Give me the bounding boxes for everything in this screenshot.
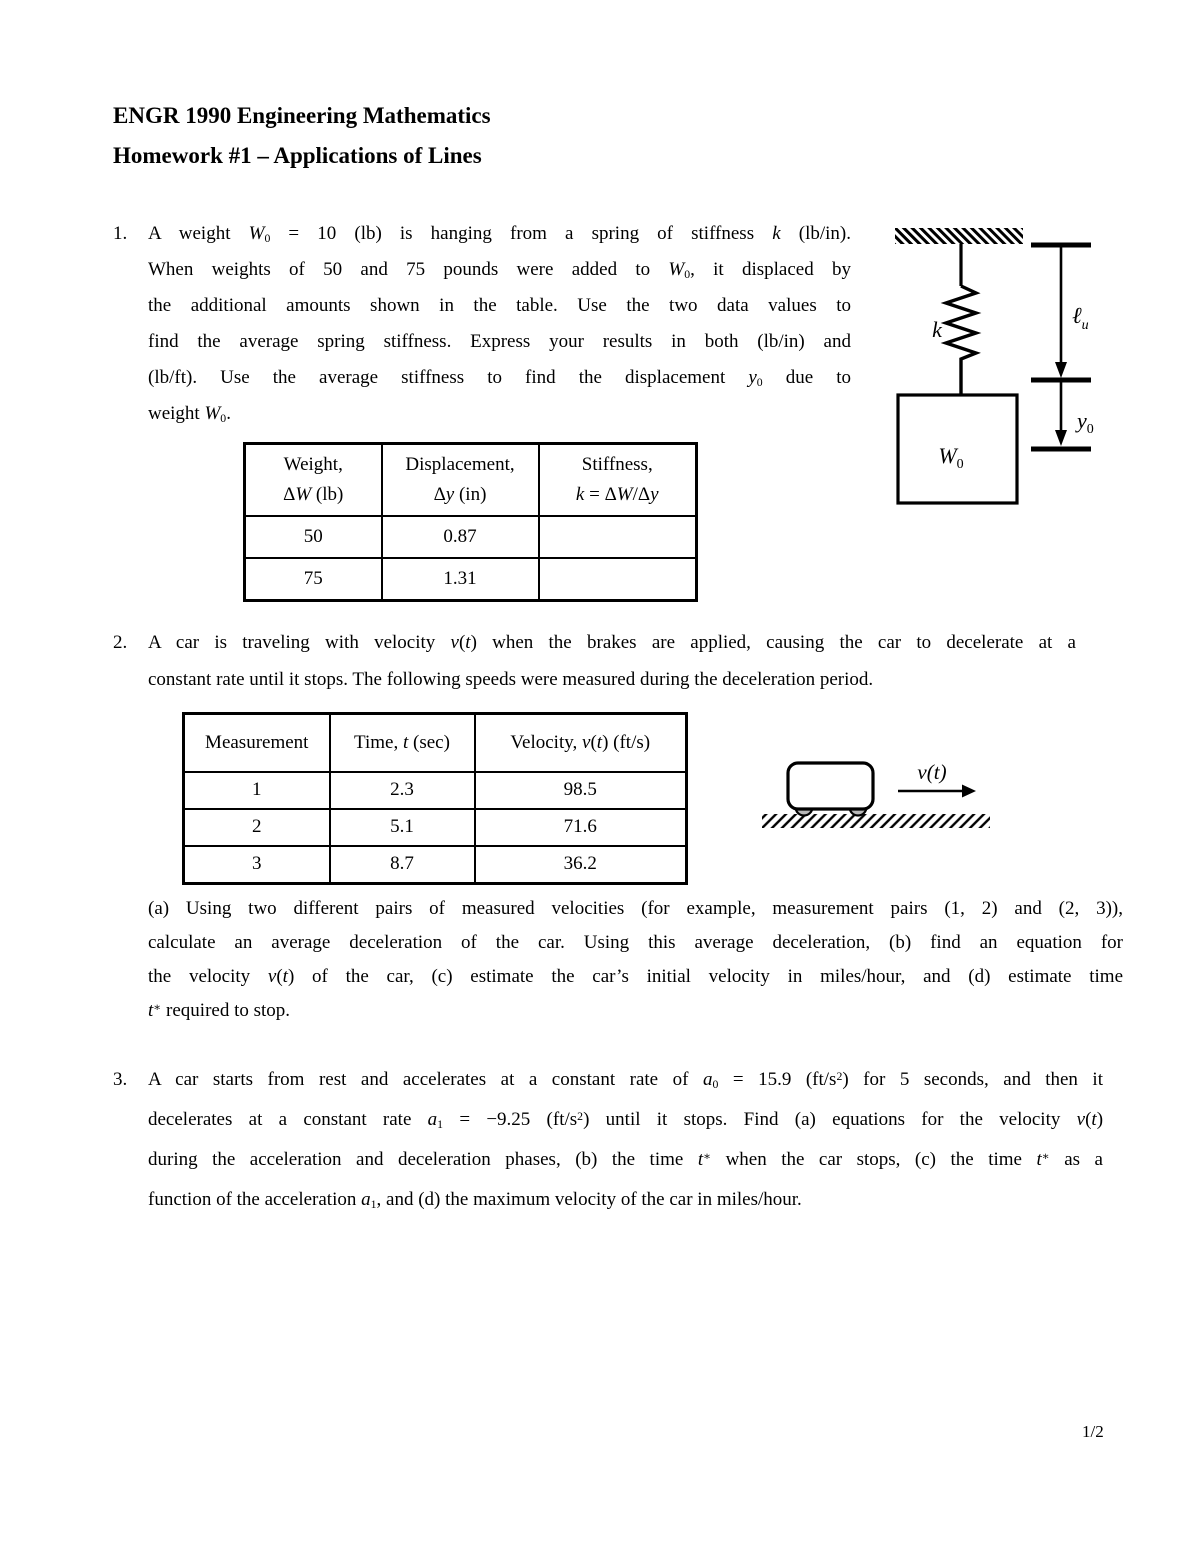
- problem-1-line: A weight W0 = 10 (lb) is hanging from a …: [148, 216, 851, 252]
- cell-stiffness-blank: [539, 558, 697, 601]
- problem-1-line: find the average spring stiffness. Expre…: [148, 324, 851, 360]
- problem-3-line: decelerates at a constant rate a1 = −9.2…: [148, 1100, 1103, 1140]
- table-row: 50 0.87: [245, 516, 697, 558]
- cell-time: 5.1: [330, 809, 475, 846]
- cell-weight: 75: [245, 558, 382, 601]
- cell-velocity: 36.2: [475, 846, 687, 884]
- col-header-measurement: Measurement: [184, 714, 330, 773]
- problem-2-subquestion-line: calculate an average deceleration of the…: [148, 926, 1123, 960]
- table-row: 3 8.7 36.2: [184, 846, 687, 884]
- problem-3-line: during the acceleration and deceleration…: [148, 1140, 1103, 1180]
- down-arrowhead-icon: [1055, 430, 1067, 446]
- course-title: ENGR 1990 Engineering Mathematics: [113, 102, 491, 129]
- problem-2-subquestion-line: t∗ required to stop.: [148, 994, 1123, 1028]
- cell-time: 8.7: [330, 846, 475, 884]
- ground-hatch-icon: [762, 814, 990, 828]
- down-arrowhead-icon: [1055, 362, 1067, 378]
- velocity-label: v(t): [917, 760, 946, 784]
- table-row: 2 5.1 71.6: [184, 809, 687, 846]
- problem-1-line: the additional amounts shown in the tabl…: [148, 288, 851, 324]
- document-page: ENGR 1990 Engineering Mathematics Homewo…: [0, 0, 1200, 1553]
- col-header-displacement: Displacement,Δy (in): [382, 444, 539, 517]
- deceleration-data-table: Measurement Time, t (sec) Velocity, v(t)…: [182, 712, 688, 885]
- cell-weight: 50: [245, 516, 382, 558]
- problem-1-line: When weights of 50 and 75 pounds were ad…: [148, 252, 851, 288]
- cell-displacement: 0.87: [382, 516, 539, 558]
- problem-3-line: function of the acceleration a1, and (d)…: [148, 1180, 1103, 1220]
- cell-stiffness-blank: [539, 516, 697, 558]
- assignment-title: Homework #1 – Applications of Lines: [113, 142, 482, 169]
- problem-2-line: A car is traveling with velocity v(t) wh…: [148, 624, 1076, 661]
- right-arrowhead-icon: [962, 785, 976, 798]
- stretch-label: y0: [1075, 408, 1094, 437]
- table-header-row: Measurement Time, t (sec) Velocity, v(t)…: [184, 714, 687, 773]
- unstretched-length-label: ℓu: [1072, 303, 1089, 333]
- problem-1-text: A weight W0 = 10 (lb) is hanging from a …: [148, 216, 851, 432]
- weight-label: W0: [938, 443, 963, 472]
- problem-1-number: 1.: [113, 216, 127, 252]
- cell-time: 2.3: [330, 772, 475, 809]
- weight-box: [898, 395, 1017, 503]
- cell-measurement: 1: [184, 772, 330, 809]
- problem-2-number: 2.: [113, 624, 127, 661]
- col-header-time: Time, t (sec): [330, 714, 475, 773]
- problem-2-subquestion-line: the velocity v(t) of the car, (c) estima…: [148, 960, 1123, 994]
- table-header-row: Weight,ΔW (lb) Displacement,Δy (in) Stif…: [245, 444, 697, 517]
- problem-2-text: A car is traveling with velocity v(t) wh…: [148, 624, 1076, 698]
- problem-2-subquestion-line: (a) Using two different pairs of measure…: [148, 892, 1123, 926]
- car-body-icon: [788, 763, 873, 809]
- cell-displacement: 1.31: [382, 558, 539, 601]
- problem-3-line: A car starts from rest and accelerates a…: [148, 1060, 1103, 1100]
- cell-velocity: 71.6: [475, 809, 687, 846]
- car-diagram: v(t): [758, 748, 998, 833]
- spring-mass-diagram: k W0 ℓu y0: [885, 222, 1135, 522]
- spring-data-table: Weight,ΔW (lb) Displacement,Δy (in) Stif…: [243, 442, 698, 602]
- table-row: 75 1.31: [245, 558, 697, 601]
- col-header-weight: Weight,ΔW (lb): [245, 444, 382, 517]
- cell-velocity: 98.5: [475, 772, 687, 809]
- problem-2-line: constant rate until it stops. The follow…: [148, 661, 1076, 698]
- problem-1-line: (lb/ft). Use the average stiffness to fi…: [148, 360, 851, 396]
- problem-3-number: 3.: [113, 1060, 127, 1100]
- ceiling-hatch-icon: [895, 228, 1023, 244]
- cell-measurement: 2: [184, 809, 330, 846]
- col-header-velocity: Velocity, v(t) (ft/s): [475, 714, 687, 773]
- spring-coil-icon: [946, 286, 976, 395]
- problem-2-subquestions: (a) Using two different pairs of measure…: [148, 892, 1123, 1028]
- cell-measurement: 3: [184, 846, 330, 884]
- problem-3-text: A car starts from rest and accelerates a…: [148, 1060, 1103, 1220]
- spring-stiffness-label: k: [932, 317, 943, 342]
- unstretched-length-dimension: [1031, 245, 1091, 380]
- table-row: 1 2.3 98.5: [184, 772, 687, 809]
- problem-1-line: weight W0.: [148, 396, 851, 432]
- col-header-stiffness: Stiffness,k = ΔW/Δy: [539, 444, 697, 517]
- page-number: 1/2: [1082, 1422, 1104, 1442]
